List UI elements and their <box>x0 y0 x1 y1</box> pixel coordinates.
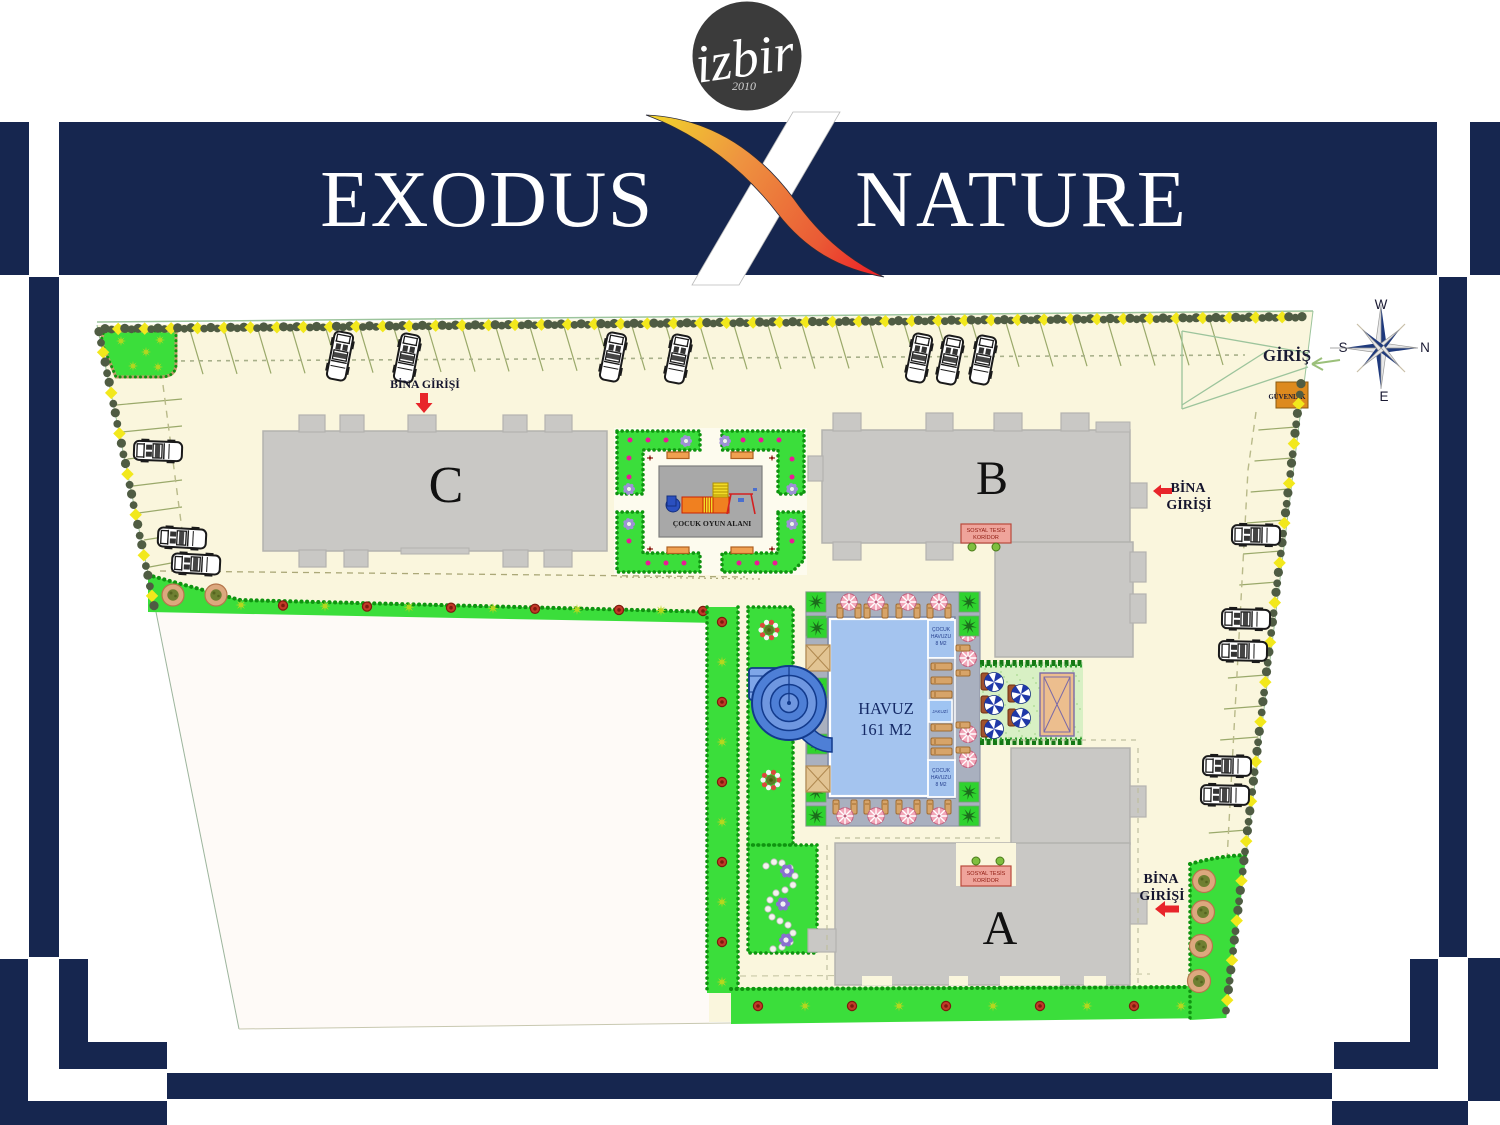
svg-text:ÇOCUK: ÇOCUK <box>932 768 951 774</box>
svg-text:2010: 2010 <box>732 79 756 93</box>
svg-text:HAVUZU: HAVUZU <box>931 634 952 640</box>
svg-text:ÇOCUK: ÇOCUK <box>932 627 951 633</box>
svg-text:BİNA: BİNA <box>1170 479 1206 496</box>
svg-text:KORİDOR: KORİDOR <box>973 534 999 541</box>
svg-text:HAVUZ: HAVUZ <box>858 699 914 718</box>
svg-text:SOSYAL TESİS: SOSYAL TESİS <box>967 527 1006 534</box>
svg-text:GİRİŞİ: GİRİŞİ <box>1166 496 1211 513</box>
svg-text:JAKUZİ: JAKUZİ <box>932 708 948 714</box>
svg-text:EXODUS: EXODUS <box>320 156 653 244</box>
svg-text:A: A <box>983 902 1018 955</box>
svg-text:HAVUZU: HAVUZU <box>931 775 952 781</box>
svg-text:W: W <box>1375 297 1388 312</box>
svg-text:8 M2: 8 M2 <box>935 641 946 647</box>
svg-text:BİNA: BİNA <box>1143 870 1179 887</box>
svg-text:8 M2: 8 M2 <box>935 782 946 788</box>
svg-text:NATURE: NATURE <box>855 156 1189 244</box>
svg-text:GİRİŞ: GİRİŞ <box>1263 346 1311 365</box>
svg-text:GİRİŞİ: GİRİŞİ <box>1139 887 1184 904</box>
svg-text:SOSYAL TESİS: SOSYAL TESİS <box>967 870 1006 877</box>
svg-text:KORİDOR: KORİDOR <box>973 877 999 884</box>
svg-text:BİNA GİRİŞİ: BİNA GİRİŞİ <box>390 377 460 391</box>
svg-text:N: N <box>1420 340 1430 355</box>
svg-text:E: E <box>1379 389 1388 404</box>
svg-text:161 M2: 161 M2 <box>860 720 912 739</box>
svg-text:B: B <box>976 452 1008 505</box>
svg-text:S: S <box>1338 340 1347 355</box>
svg-text:ÇOCUK OYUN ALANI: ÇOCUK OYUN ALANI <box>673 519 752 528</box>
svg-text:C: C <box>429 457 464 514</box>
